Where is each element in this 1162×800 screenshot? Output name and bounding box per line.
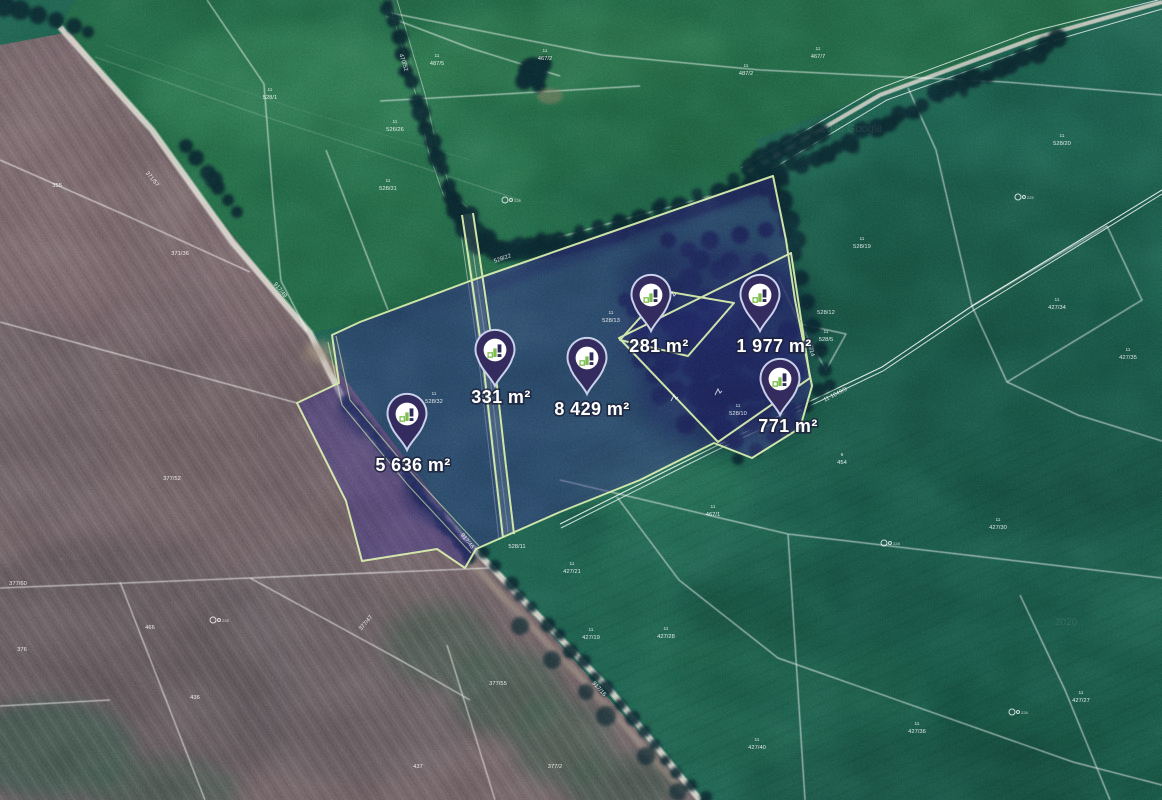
svg-text:771 m²: 771 m² bbox=[758, 416, 817, 436]
svg-text:5 636 m²: 5 636 m² bbox=[375, 455, 450, 475]
svg-text:1 977 m²: 1 977 m² bbox=[736, 336, 811, 356]
svg-text:8 429 m²: 8 429 m² bbox=[554, 399, 629, 419]
svg-text:281 m²: 281 m² bbox=[629, 336, 688, 356]
svg-text:331 m²: 331 m² bbox=[471, 387, 530, 407]
